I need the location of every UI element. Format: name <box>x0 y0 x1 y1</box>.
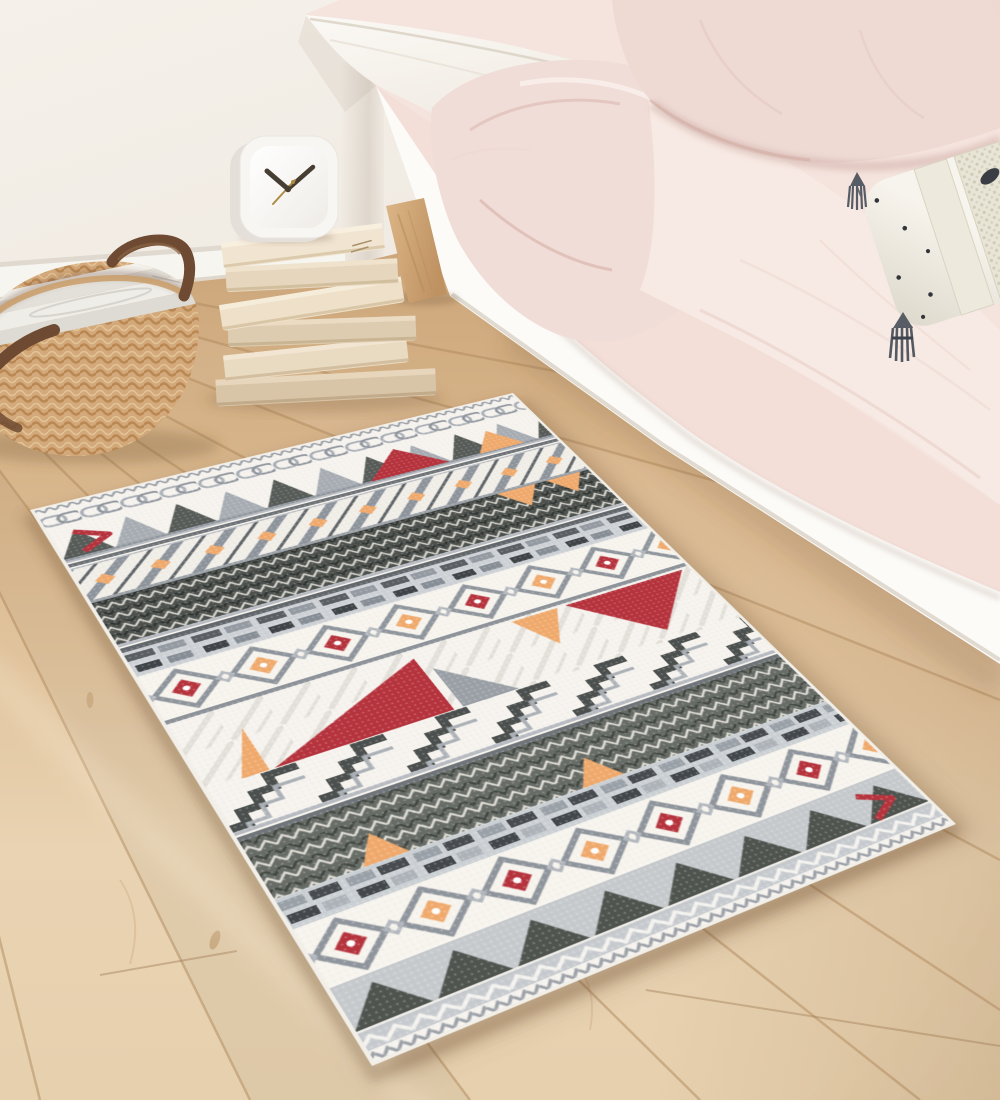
clock-hub <box>285 186 291 192</box>
scene <box>0 0 1000 1100</box>
clock <box>230 136 338 243</box>
